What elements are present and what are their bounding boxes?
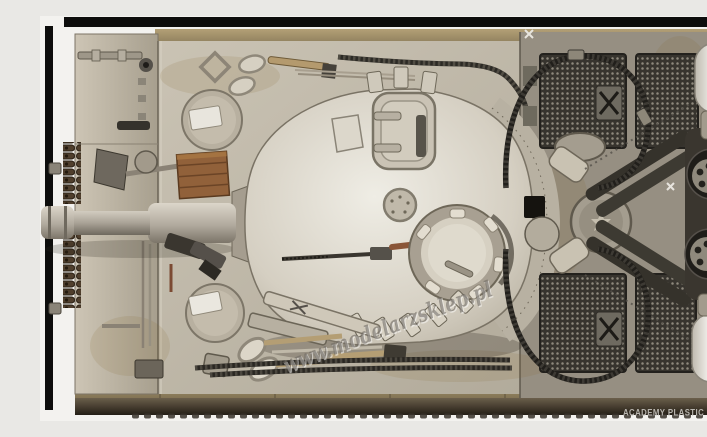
barrel-sleeve bbox=[148, 203, 236, 243]
photo-frame-top bbox=[64, 17, 707, 27]
loader-hatch bbox=[373, 93, 435, 169]
shovel bbox=[94, 149, 128, 190]
track-teeth bbox=[132, 413, 707, 419]
turret-wedge-block bbox=[332, 115, 363, 152]
ventilator-port bbox=[384, 189, 416, 221]
tank-model-photo: www.modelarzsklep.pl www.modelarzsklep.p… bbox=[40, 16, 707, 421]
wooden-crate bbox=[177, 151, 230, 198]
brand-caption: ACADEMY PLASTIC MODEL bbox=[623, 408, 707, 419]
barrel-tube bbox=[70, 211, 150, 235]
exhaust-covers bbox=[685, 128, 707, 300]
pistol-port bbox=[524, 196, 545, 218]
tow-shackle-upper bbox=[49, 163, 61, 174]
tow-shackle-lower bbox=[49, 303, 61, 314]
hull-bottom-shadow bbox=[75, 398, 707, 415]
radio-operator-hatch bbox=[182, 90, 242, 150]
muzzle-brake bbox=[41, 206, 74, 239]
cupola-dome bbox=[428, 224, 486, 282]
hatch-handle bbox=[416, 115, 426, 157]
tank-model bbox=[41, 29, 707, 419]
driver-hatch bbox=[186, 284, 244, 342]
